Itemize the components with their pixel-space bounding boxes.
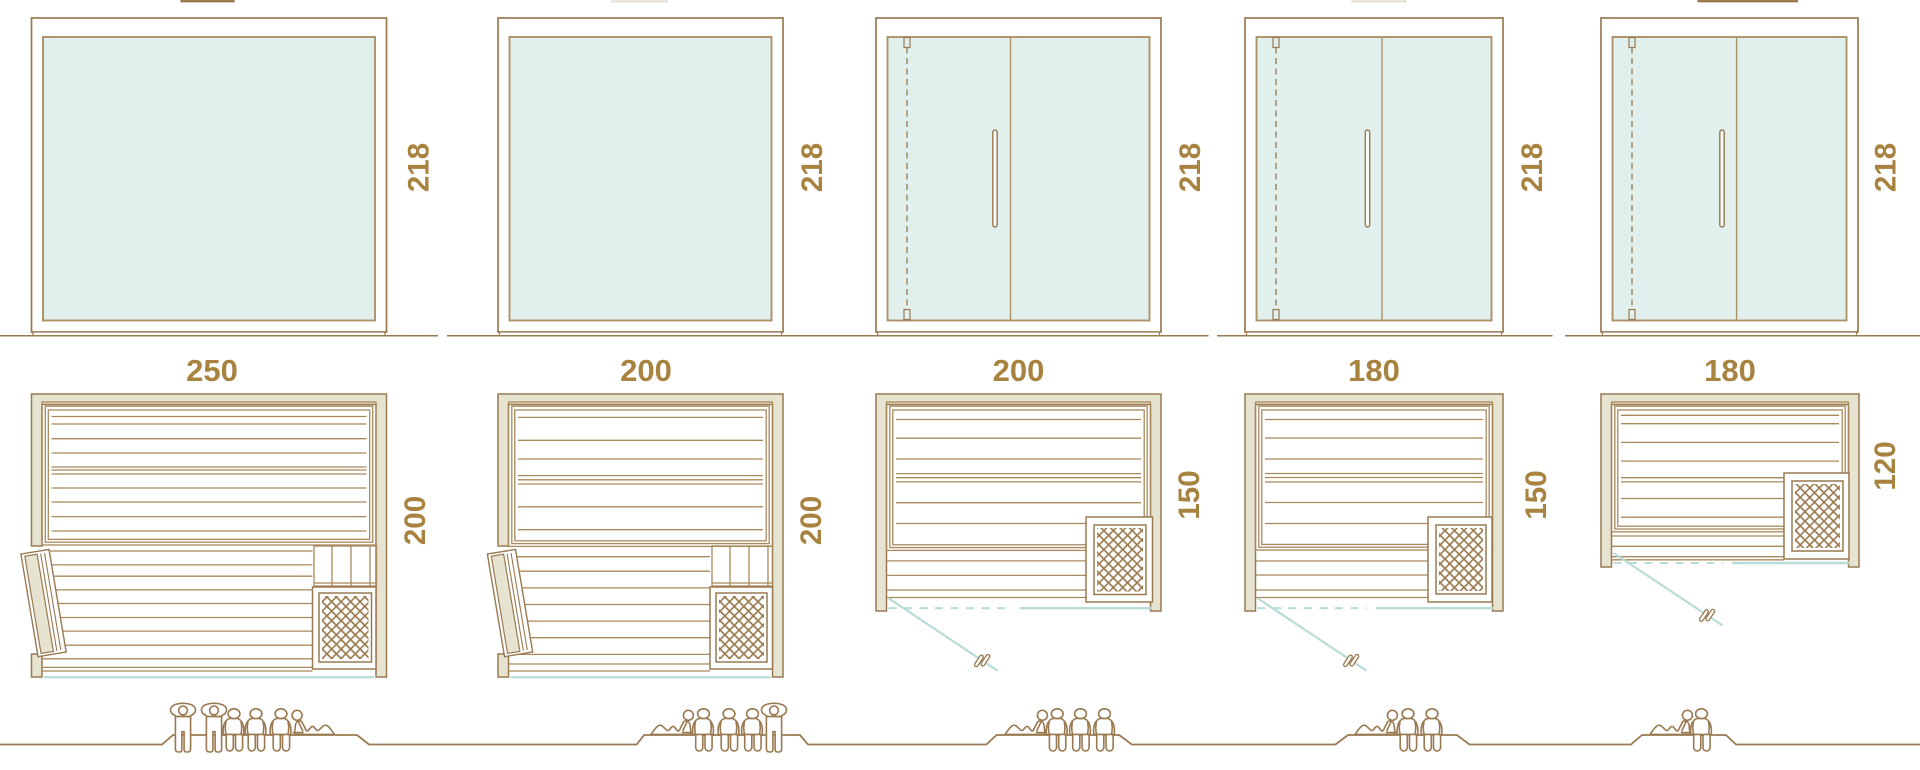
svg-text:200: 200 — [795, 496, 828, 545]
svg-text:120: 120 — [1869, 441, 1902, 490]
svg-text:200: 200 — [399, 496, 432, 545]
svg-text:218: 218 — [1870, 143, 1903, 192]
svg-text:250: 250 — [186, 353, 238, 388]
svg-text:218: 218 — [1516, 143, 1549, 192]
svg-text:218: 218 — [796, 143, 829, 192]
svg-text:200: 200 — [993, 353, 1045, 388]
svg-text:180: 180 — [1704, 353, 1756, 388]
svg-text:200: 200 — [620, 353, 672, 388]
svg-text:180: 180 — [1348, 353, 1400, 388]
svg-text:150: 150 — [1520, 470, 1553, 519]
svg-text:218: 218 — [403, 143, 436, 192]
svg-text:150: 150 — [1173, 470, 1206, 519]
svg-text:218: 218 — [1174, 143, 1207, 192]
